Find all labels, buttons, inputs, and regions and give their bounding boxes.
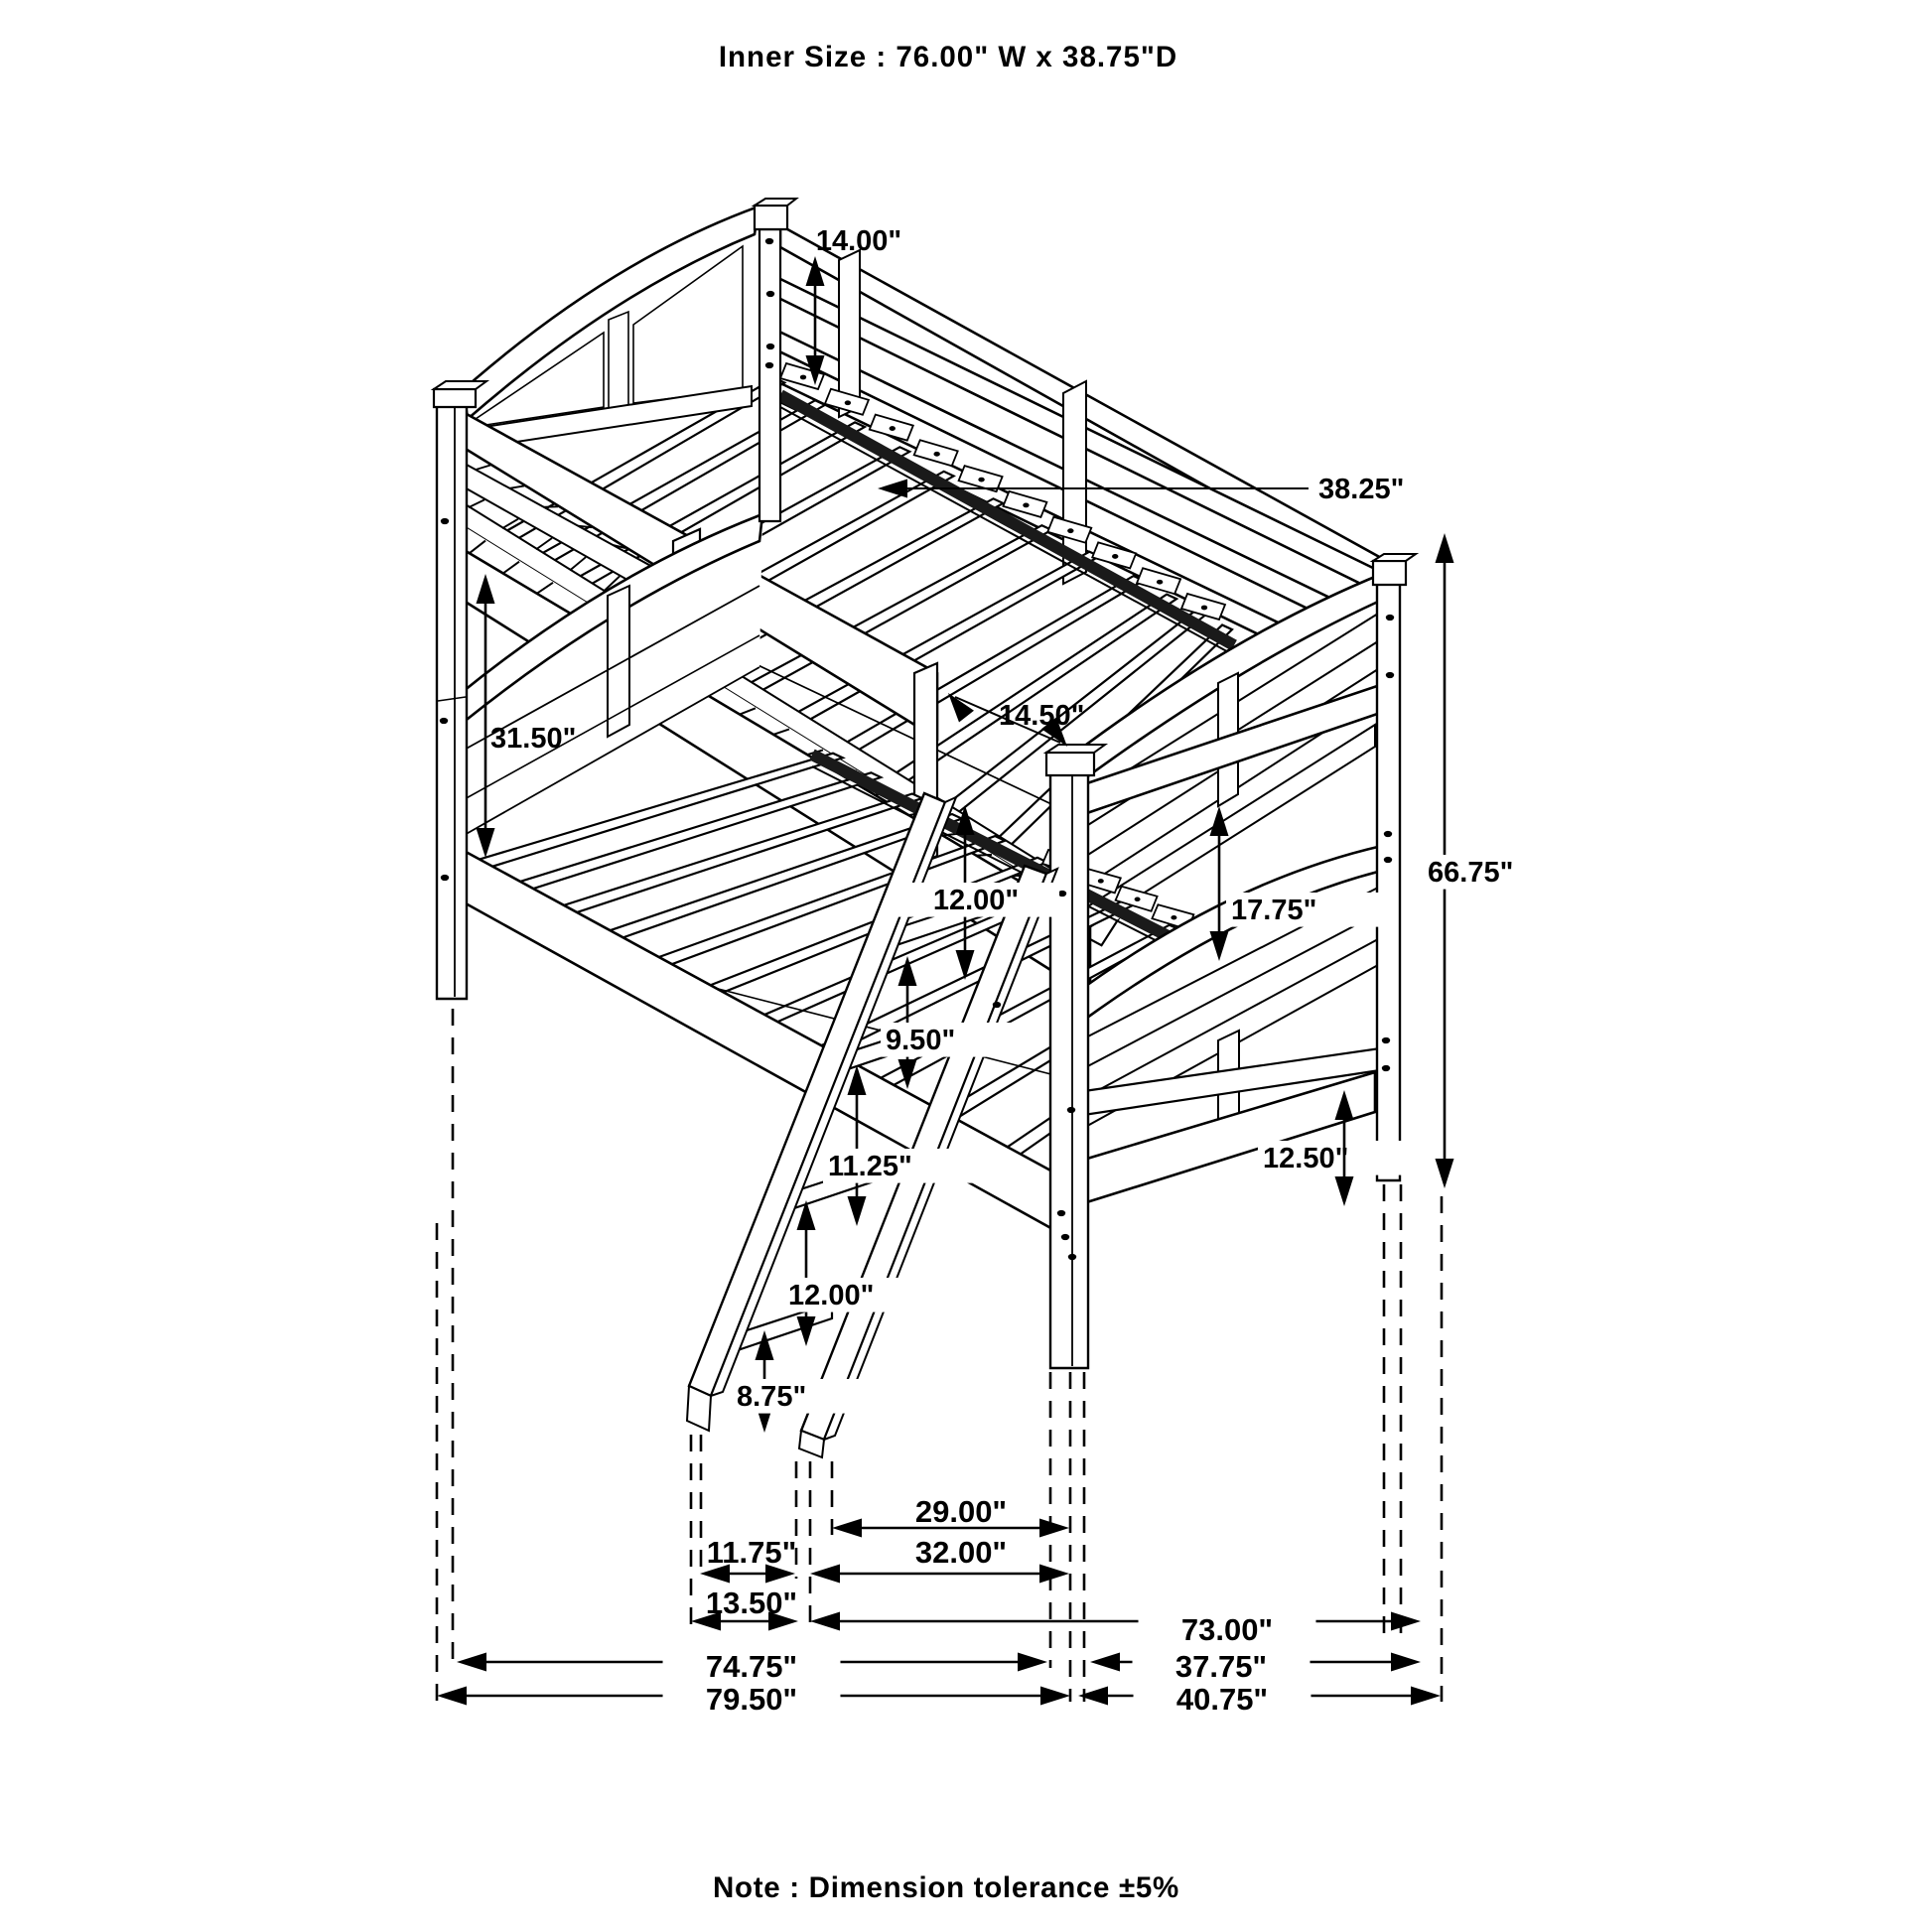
svg-text:14.00": 14.00" (816, 225, 901, 257)
svg-text:14.50": 14.50" (999, 700, 1084, 732)
svg-text:66.75": 66.75" (1428, 857, 1513, 889)
svg-text:37.75": 37.75" (1175, 1649, 1267, 1684)
svg-text:8.75": 8.75" (737, 1381, 806, 1413)
svg-text:40.75": 40.75" (1176, 1682, 1268, 1717)
svg-text:12.50": 12.50" (1263, 1143, 1348, 1174)
svg-text:Note : Dimension tolerance ±5%: Note : Dimension tolerance ±5% (713, 1871, 1179, 1904)
svg-text:38.25": 38.25" (1318, 474, 1404, 505)
svg-text:9.50": 9.50" (886, 1025, 955, 1056)
svg-text:73.00": 73.00" (1181, 1612, 1273, 1647)
svg-text:29.00": 29.00" (915, 1494, 1007, 1529)
svg-text:17.75": 17.75" (1231, 895, 1316, 926)
svg-text:11.25": 11.25" (828, 1151, 912, 1182)
svg-text:31.50": 31.50" (490, 723, 576, 755)
svg-text:12.00": 12.00" (788, 1280, 874, 1311)
svg-text:Inner Size : 76.00" W x 38.75: Inner Size : 76.00" W x 38.75"D (719, 41, 1177, 73)
svg-text:32.00": 32.00" (915, 1535, 1007, 1570)
svg-text:11.75": 11.75" (707, 1535, 797, 1570)
svg-text:12.00": 12.00" (933, 885, 1019, 916)
svg-text:79.50": 79.50" (706, 1682, 797, 1717)
svg-text:74.75": 74.75" (706, 1649, 797, 1684)
